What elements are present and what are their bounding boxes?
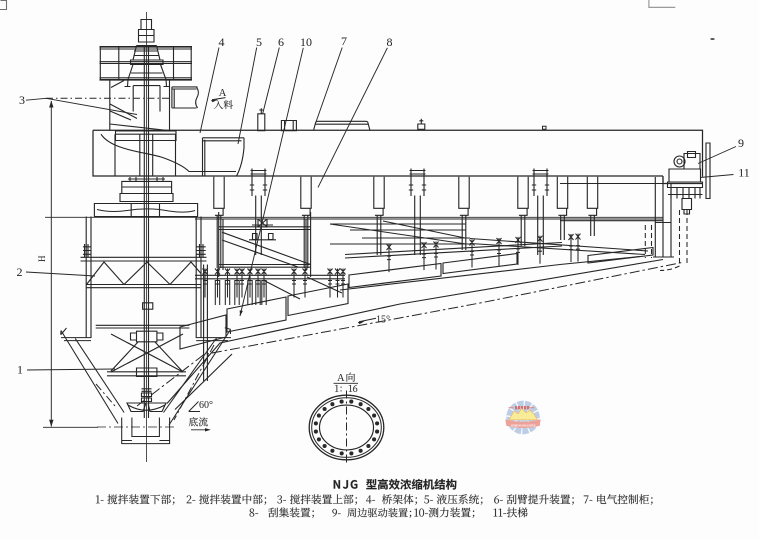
svg-text:9: 9 — [738, 136, 744, 150]
svg-text:5: 5 — [256, 35, 262, 49]
svg-text:60°: 60° — [199, 400, 213, 411]
svg-text:A: A — [337, 373, 345, 384]
svg-text:7: 7 — [341, 34, 347, 48]
svg-text:JINPENGMACHINE: JINPENGMACHINE — [510, 425, 535, 428]
svg-text:4: 4 — [219, 35, 225, 49]
svg-text:H: H — [37, 255, 47, 262]
svg-text:2: 2 — [17, 265, 23, 279]
svg-text:10: 10 — [300, 35, 312, 49]
svg-text:A: A — [219, 88, 227, 99]
svg-text:3: 3 — [19, 93, 25, 107]
svg-text:15°: 15° — [376, 315, 390, 326]
svg-text:1: 1 — [17, 363, 23, 377]
svg-text:8: 8 — [387, 35, 393, 49]
svg-text:6: 6 — [278, 35, 284, 49]
svg-text:11: 11 — [738, 166, 750, 180]
